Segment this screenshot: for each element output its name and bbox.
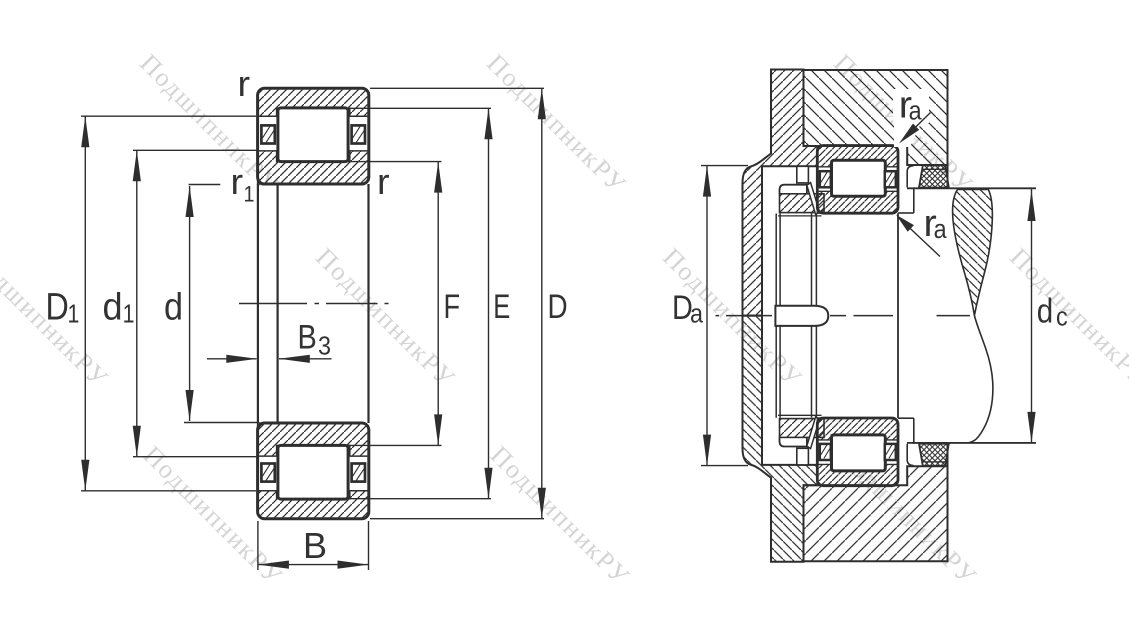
svg-text:a: a xyxy=(934,216,947,244)
svg-text:B: B xyxy=(298,317,317,356)
svg-text:1: 1 xyxy=(244,182,255,206)
svg-text:c: c xyxy=(1056,304,1068,332)
svg-text:D: D xyxy=(46,286,69,328)
svg-text:3: 3 xyxy=(318,332,331,360)
svg-text:r: r xyxy=(231,162,244,202)
svg-text:d: d xyxy=(164,285,183,328)
svg-text:a: a xyxy=(909,97,922,125)
svg-text:d: d xyxy=(1037,291,1053,329)
svg-text:1: 1 xyxy=(123,300,135,330)
svg-text:r: r xyxy=(238,64,251,104)
svg-text:r: r xyxy=(377,162,390,202)
svg-text:F: F xyxy=(444,287,461,326)
svg-text:d: d xyxy=(103,285,123,328)
svg-text:E: E xyxy=(493,288,510,325)
svg-text:a: a xyxy=(690,301,703,329)
svg-text:B: B xyxy=(303,525,327,566)
svg-text:1: 1 xyxy=(68,300,80,330)
svg-text:D: D xyxy=(548,287,568,325)
